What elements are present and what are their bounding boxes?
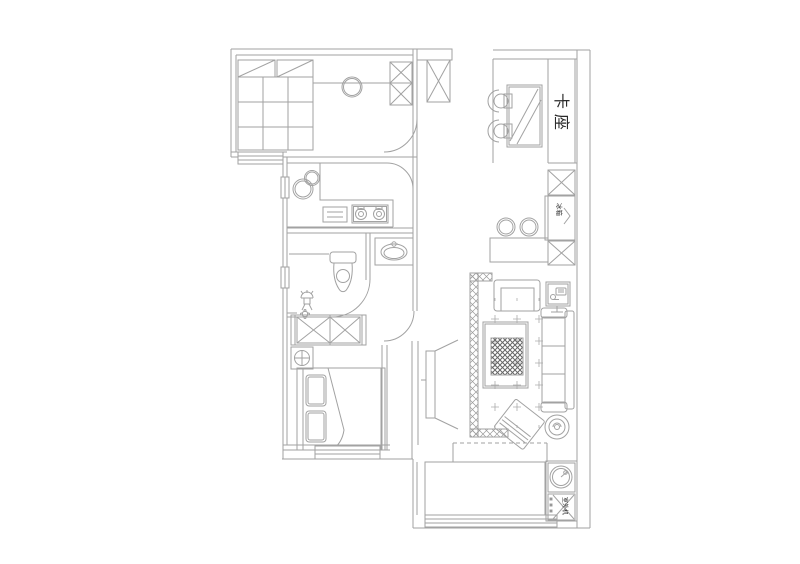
bathroom bbox=[281, 252, 370, 319]
bar-stool-icon bbox=[520, 218, 538, 236]
fridge-label: 冰箱 bbox=[555, 203, 564, 217]
entry-cabinet bbox=[417, 49, 452, 102]
shower-icon bbox=[301, 290, 313, 310]
ac-outdoor-unit: 室外机 bbox=[548, 494, 575, 520]
stool-icon bbox=[342, 77, 362, 97]
tv-icon bbox=[426, 351, 435, 418]
wash-basin-icon bbox=[381, 242, 407, 260]
fridge: 冰箱 bbox=[545, 196, 575, 240]
balcony: 室外机 bbox=[425, 443, 577, 527]
toilet-icon bbox=[330, 252, 356, 292]
wardrobe-shelf-diagonals bbox=[238, 60, 313, 77]
bedroom bbox=[297, 311, 414, 459]
bed bbox=[297, 368, 385, 450]
wardrobe-grid bbox=[238, 77, 313, 150]
kitchen bbox=[281, 163, 413, 227]
cutting-board-icon bbox=[323, 207, 347, 222]
cloakroom bbox=[238, 60, 417, 164]
wall-window bbox=[281, 267, 289, 288]
floor-drain-box-icon bbox=[291, 347, 313, 369]
dining-chair bbox=[488, 120, 512, 142]
window-sill bbox=[238, 152, 283, 164]
closet-cabinet bbox=[291, 315, 366, 345]
wall-window bbox=[281, 177, 289, 198]
entry-door-arc bbox=[384, 119, 417, 152]
dining-chair bbox=[488, 90, 512, 112]
bedroom-door-arc bbox=[384, 311, 414, 341]
floor-plan-canvas: 卡座 冰箱 bbox=[0, 0, 800, 564]
bathroom-door-arc bbox=[332, 279, 370, 317]
kitchen-sink-icon bbox=[293, 171, 320, 200]
ac-unit-label: 室外机 bbox=[561, 497, 569, 515]
dining-area: 卡座 bbox=[488, 59, 577, 163]
phone-icon bbox=[551, 288, 567, 300]
apartment-floor-plan: 卡座 冰箱 bbox=[0, 0, 800, 564]
potted-plant-icon bbox=[545, 415, 569, 439]
tall-cabinet-x bbox=[390, 62, 412, 105]
pillow bbox=[306, 411, 326, 442]
kitchen-door-arc bbox=[387, 163, 413, 189]
booth-label: 卡座 bbox=[552, 93, 570, 135]
bar-counter bbox=[490, 218, 548, 262]
gas-stove-icon bbox=[352, 205, 388, 223]
wash-basin-nook bbox=[375, 238, 413, 265]
blanket-fold bbox=[328, 368, 344, 449]
pillow bbox=[306, 375, 326, 406]
balcony-window bbox=[425, 515, 557, 527]
tv-wall bbox=[421, 340, 458, 429]
living-room bbox=[470, 273, 574, 450]
fridge-cabinet-column: 冰箱 bbox=[545, 170, 575, 265]
bedroom-window bbox=[315, 446, 380, 459]
bar-stool-icon bbox=[497, 218, 515, 236]
